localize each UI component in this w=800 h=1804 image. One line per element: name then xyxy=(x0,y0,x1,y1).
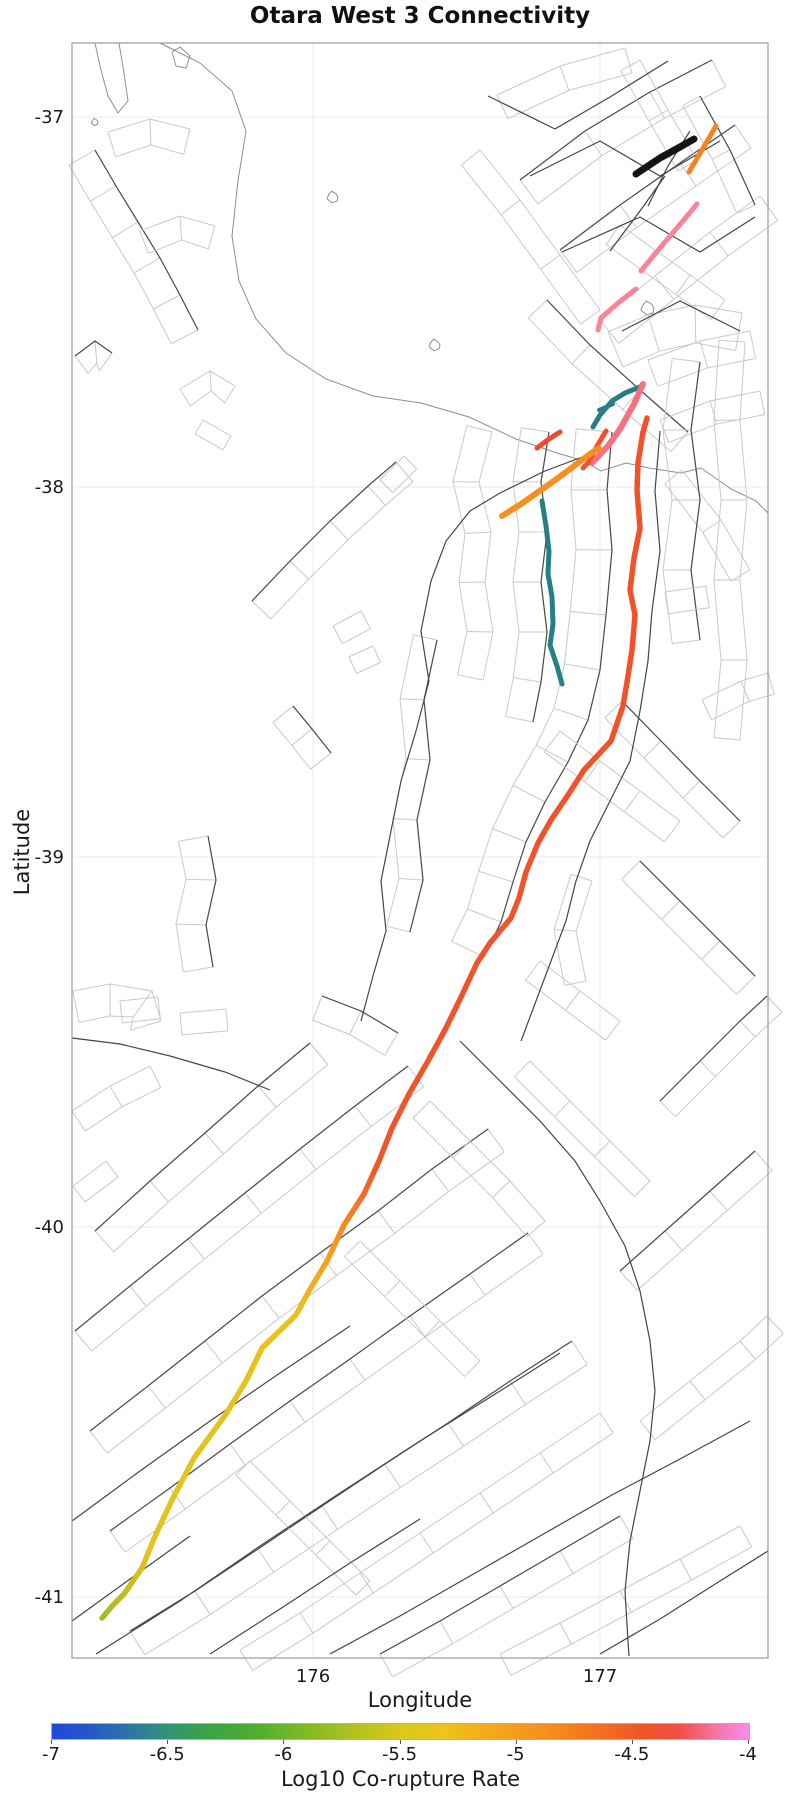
fault-chain-rung xyxy=(440,1621,453,1644)
y-tick-label: -40 xyxy=(35,1217,64,1238)
fault-chain-rung xyxy=(300,1613,313,1633)
fault-chain-offset xyxy=(271,482,413,619)
fault-chain-rung xyxy=(361,611,370,629)
fault-chain xyxy=(648,331,750,360)
fault-chain-rung xyxy=(290,1401,305,1422)
fault-chain-rung xyxy=(73,1186,85,1202)
fault-chain-rung xyxy=(378,1211,395,1233)
fault-trace xyxy=(410,640,437,932)
fault-chain-rung xyxy=(387,926,410,932)
fault-chain-rung xyxy=(655,276,674,299)
fault-chain-offset xyxy=(668,608,709,614)
fault-chain-rung xyxy=(258,1549,274,1572)
fault-chain-rung xyxy=(665,1231,682,1250)
fault-chain-rung xyxy=(108,132,116,157)
fault-chain xyxy=(430,1101,545,1221)
fault-trace xyxy=(361,456,585,1021)
fault-chain-offset xyxy=(622,879,737,994)
fault-chain-rung xyxy=(571,874,592,881)
fault-chain-rung xyxy=(649,110,668,121)
fault-chain xyxy=(640,1316,767,1421)
fault-chain-rung xyxy=(316,1541,330,1555)
fault-chain-rung xyxy=(140,231,148,253)
colorbar-tick-label: -6 xyxy=(274,1744,292,1765)
fault-chain-rung xyxy=(493,829,526,842)
fault-chain-rung xyxy=(404,456,417,469)
fault-chain-rung xyxy=(600,1413,613,1433)
fault-chain xyxy=(349,646,373,657)
fault-chain-rung xyxy=(396,462,413,482)
fault-chain-rung xyxy=(710,1191,727,1210)
fault-chain-rung xyxy=(750,331,755,358)
fault-chain-offset xyxy=(145,1365,588,1655)
fault-chain-offset xyxy=(655,1334,783,1440)
fault-chain-rung xyxy=(672,358,700,362)
fault-chain-offset xyxy=(676,1012,782,1116)
fault-chain-offset xyxy=(544,752,664,842)
fault-chain-rung xyxy=(99,353,112,371)
fault-chain-rung xyxy=(740,1021,755,1037)
fault-chain-rung xyxy=(712,60,726,87)
fault-chain-rung xyxy=(130,1631,145,1655)
fault-chain-rung xyxy=(625,48,632,73)
fault-chain-rung xyxy=(406,759,430,760)
fault-chain-offset xyxy=(114,1065,328,1252)
fault-chain-rung xyxy=(90,186,116,201)
fault-chain-rung xyxy=(760,391,765,415)
fault-trace xyxy=(210,1519,420,1654)
y-tick-label: -41 xyxy=(35,1587,64,1608)
fault-trace xyxy=(72,1326,350,1521)
fault-chain-rung xyxy=(719,340,745,342)
fault-chain-rung xyxy=(513,678,541,682)
fault-chain xyxy=(479,432,493,680)
colorbar-tick-label: -4.5 xyxy=(614,1744,649,1765)
fault-chain xyxy=(480,150,600,310)
fault-chain-rung xyxy=(755,1151,772,1170)
fault-chain-rung xyxy=(90,1431,107,1453)
fault-chain-rung xyxy=(112,222,138,238)
fault-chain-rung xyxy=(465,532,491,534)
fault-trace xyxy=(380,1516,620,1654)
fault-chain-rung xyxy=(69,150,95,165)
fault-chain-rung xyxy=(622,861,640,879)
fault-chain xyxy=(90,1129,488,1431)
fault-chain-rung xyxy=(606,1021,620,1040)
fault-trace xyxy=(640,861,755,976)
fault-chain xyxy=(322,996,398,1033)
fault-chain-rung xyxy=(566,991,580,1010)
fault-chain-offset xyxy=(637,1170,772,1290)
x-axis-label: Longitude xyxy=(72,1688,768,1712)
island-outline xyxy=(641,301,654,315)
fault-chain-rung xyxy=(150,1066,161,1087)
fault-chain-rung xyxy=(384,1281,400,1297)
fault-chain-rung xyxy=(526,961,540,980)
fault-chain-offset xyxy=(508,73,632,119)
fault-chain-rung xyxy=(458,675,483,680)
fault-chain-rung xyxy=(195,420,203,434)
fault-chain-rung xyxy=(572,1341,587,1365)
fault-chain-rung xyxy=(73,991,79,1022)
fault-chain xyxy=(250,1461,370,1581)
fault-chain-rung xyxy=(420,1533,433,1553)
fault-chain xyxy=(120,997,158,1001)
fault-chain-rung xyxy=(712,150,730,159)
fault-chain-rung xyxy=(521,428,549,432)
fault-chain xyxy=(702,673,768,700)
fault-chain-rung xyxy=(344,1241,360,1257)
fault-chain xyxy=(410,640,437,932)
fault-chain-rung xyxy=(660,1101,676,1117)
fault-chain xyxy=(500,1526,740,1654)
fault-chain-rung xyxy=(702,941,720,959)
fault-trace xyxy=(488,61,668,129)
fault-chain-rung xyxy=(480,1493,493,1513)
fault-chain-offset xyxy=(122,1019,160,1023)
fault-chain-rung xyxy=(95,341,97,363)
fault-chain xyxy=(240,1413,600,1650)
colorbar-gradient xyxy=(51,1723,750,1740)
colorbar-tick-label: -6.5 xyxy=(150,1744,185,1765)
island-outline xyxy=(327,191,338,203)
fault-chain-offset xyxy=(236,1475,356,1595)
fault-chain-rung xyxy=(276,1501,290,1515)
fault-chain-offset xyxy=(313,1020,385,1055)
y-tick-label: -38 xyxy=(35,477,64,498)
fault-chain-rung xyxy=(95,1231,114,1252)
fault-trace xyxy=(322,996,398,1033)
fault-chain-rung xyxy=(148,1386,165,1408)
fault-chain-offset xyxy=(356,662,380,673)
fault-chain-rung xyxy=(467,909,501,922)
fault-chain xyxy=(108,119,190,132)
fault-trace xyxy=(90,1129,488,1431)
fault-chain xyxy=(530,1061,650,1181)
fault-chain-rung xyxy=(527,1221,545,1237)
fault-chain-rung xyxy=(501,200,520,215)
fault-chain-rung xyxy=(400,699,424,700)
fault-chain-rung xyxy=(106,1161,118,1177)
fault-chain-rung xyxy=(171,330,198,344)
fault-chain-rung xyxy=(448,1423,463,1446)
fault-chain-rung xyxy=(560,250,577,272)
fault-chain-rung xyxy=(399,879,423,880)
fault-chain-rung xyxy=(650,92,665,118)
fault-chain-offset xyxy=(344,1257,464,1377)
rupture-path-teal-long xyxy=(542,501,562,684)
fault-chain-rung xyxy=(672,640,700,644)
fault-chain-rung xyxy=(735,125,751,148)
fault-chain-rung xyxy=(581,310,600,324)
fault-chain-rung xyxy=(671,432,688,452)
fault-chain-offset xyxy=(195,434,223,450)
fault-chain-rung xyxy=(183,967,213,972)
fault-chain-rung xyxy=(153,295,180,309)
fault-chain-rung xyxy=(695,305,696,343)
fault-chain-offset xyxy=(683,106,737,214)
fault-chain-rung xyxy=(385,1033,398,1055)
fault-chain-rung xyxy=(210,371,211,391)
colorbar-tick-label: -5 xyxy=(507,1744,525,1765)
fault-chain-rung xyxy=(188,1239,204,1259)
fault-chain-rung xyxy=(700,1061,716,1077)
fault-chain-rung xyxy=(740,1341,755,1359)
fault-chain-rung xyxy=(176,924,206,925)
fault-chain-rung xyxy=(373,646,380,662)
fault-chain-rung xyxy=(714,738,740,740)
fault-chain-rung xyxy=(479,871,513,882)
fault-chain-rung xyxy=(513,481,541,482)
fault-chain-rung xyxy=(195,1591,210,1615)
fault-chain-offset xyxy=(190,391,224,406)
fault-chain-rung xyxy=(464,1361,480,1377)
fault-chain-rung xyxy=(368,486,385,505)
fault-chain-offset xyxy=(387,635,414,926)
fault-chain-offset xyxy=(85,1087,161,1131)
fault-chain-rung xyxy=(541,255,560,269)
rupture-path-orange-northeast xyxy=(689,126,716,172)
fault-chain-rung xyxy=(311,753,331,769)
fault-chain-rung xyxy=(110,1086,122,1107)
fault-chain xyxy=(95,1043,310,1231)
fault-chain-rung xyxy=(680,1559,691,1580)
fault-chain-rung xyxy=(413,1101,430,1118)
island-outline xyxy=(91,118,98,125)
fault-chain-offset xyxy=(663,358,672,643)
fault-chain-offset xyxy=(91,1087,423,1351)
fault-chain-rung xyxy=(461,150,480,165)
fault-chain-rung xyxy=(690,1381,705,1400)
fault-chain-rung xyxy=(640,1421,655,1440)
fault-chain-rung xyxy=(178,836,208,841)
fault-chain-rung xyxy=(273,706,293,723)
fault-chain-rung xyxy=(500,1654,511,1675)
fault-chain-offset xyxy=(619,220,778,343)
fault-chain-rung xyxy=(608,332,623,367)
fault-chain-rung xyxy=(624,791,640,812)
fault-chain xyxy=(73,984,161,1021)
fault-chain-rung xyxy=(262,1296,279,1318)
fault-chain-rung xyxy=(150,119,151,145)
fault-chain-rung xyxy=(385,1464,400,1487)
fault-trace xyxy=(620,1151,755,1271)
fault-chain-offset xyxy=(88,363,99,374)
fault-trace xyxy=(95,1043,310,1231)
fault-chain-rung xyxy=(740,1526,752,1547)
fault-chain-rung xyxy=(333,626,342,644)
fault-chain-rung xyxy=(300,1149,316,1169)
x-tick-label: 176 xyxy=(296,1666,330,1687)
colorbar-tick-label: -7 xyxy=(42,1744,60,1765)
fault-chain-rung xyxy=(767,1316,783,1334)
fault-trace xyxy=(252,462,396,601)
fault-chain-rung xyxy=(208,226,215,249)
fault-chain-rung xyxy=(540,1453,553,1473)
x-tick-label: 177 xyxy=(583,1666,617,1687)
fault-chain-offset xyxy=(577,148,751,272)
fault-chain-rung xyxy=(514,1061,530,1077)
fault-chain-rung xyxy=(292,729,312,745)
fault-chain-offset xyxy=(85,1177,118,1202)
fault-chain-rung xyxy=(184,129,190,154)
rupture-path-main-corupture-trace xyxy=(102,418,647,1618)
fault-chain-rung xyxy=(664,821,680,842)
fault-chain-rung xyxy=(760,196,778,220)
fault-chain-rung xyxy=(528,1233,543,1254)
fault-trace xyxy=(547,300,688,432)
fault-chain-rung xyxy=(554,708,588,720)
fault-trace xyxy=(460,1041,655,1656)
fault-chain xyxy=(360,1241,480,1361)
coastline-peninsula xyxy=(172,47,190,68)
fault-chain-rung xyxy=(737,976,755,994)
fault-chain-rung xyxy=(290,561,309,579)
colorbar-tick-label: -5.5 xyxy=(382,1744,417,1765)
colorbar-tick-label: -4 xyxy=(739,1744,757,1765)
fault-chain xyxy=(665,586,706,592)
fault-trace xyxy=(484,432,612,957)
fault-chain xyxy=(576,881,592,981)
fault-chain-offset xyxy=(461,165,580,324)
fault-chain xyxy=(691,362,700,640)
fault-trace xyxy=(560,125,735,250)
fault-chain-rung xyxy=(150,1181,169,1202)
fault-chain-rung xyxy=(585,131,602,156)
coastline xyxy=(160,43,768,513)
fault-chain-rung xyxy=(470,1274,485,1295)
fault-chain-rung xyxy=(330,521,348,540)
fault-chain xyxy=(497,48,625,95)
fault-chain-rung xyxy=(223,436,231,450)
rupture-path-pink-upper xyxy=(641,204,697,271)
y-tick-label: -37 xyxy=(35,107,64,128)
fault-chain-rung xyxy=(453,1141,470,1158)
fault-chain-rung xyxy=(180,1013,182,1035)
fault-chain xyxy=(140,216,215,231)
fault-chain-rung xyxy=(570,611,606,615)
fault-chain-rung xyxy=(702,700,712,720)
fault-chain-rung xyxy=(560,66,569,90)
fault-trace xyxy=(330,1421,750,1654)
fault-chain-offset xyxy=(273,723,311,770)
fault-chain-rung xyxy=(240,1650,253,1670)
fault-chain-rung xyxy=(459,582,485,583)
fault-chain-offset xyxy=(506,428,522,717)
fault-chain-rung xyxy=(252,601,271,619)
figure-canvas: Otara West 3 Connectivity 176177-37-38-3… xyxy=(0,0,800,1804)
fault-chain xyxy=(180,1009,226,1013)
fault-chain xyxy=(180,371,235,389)
rupture-path-subject-fault-otara-west-3 xyxy=(636,139,694,174)
fault-chain-rung xyxy=(648,360,658,386)
fault-chain-rung xyxy=(492,1181,510,1197)
fault-trace xyxy=(622,701,740,821)
fault-chain-offset xyxy=(342,629,370,644)
fault-chain xyxy=(660,391,760,420)
fault-chain-rung xyxy=(565,664,600,670)
fault-chain-offset xyxy=(514,1077,634,1197)
fault-chain-rung xyxy=(350,1011,361,1034)
map-plot: 176177-37-38-39-40-41 xyxy=(0,0,800,1804)
fault-trace xyxy=(206,836,216,967)
fault-chain-rung xyxy=(130,1021,161,1030)
fault-chain xyxy=(203,420,231,436)
fault-trace xyxy=(72,1536,190,1621)
fault-chain-rung xyxy=(723,821,740,838)
coastline-peninsula xyxy=(95,43,128,113)
fault-chain-rung xyxy=(75,356,88,374)
fault-chain-rung xyxy=(488,1129,504,1152)
fault-chain-rung xyxy=(497,95,508,119)
fault-chain-offset xyxy=(148,240,208,254)
fault-chain-rung xyxy=(186,879,216,880)
rupture-path-teal-dash xyxy=(599,404,613,410)
fault-chain-rung xyxy=(432,1169,449,1191)
fault-chain-offset xyxy=(116,145,184,157)
y-tick-label: -39 xyxy=(35,847,64,868)
fault-chain-rung xyxy=(648,315,659,351)
fault-chain-rung xyxy=(414,635,437,640)
fault-chain-rung xyxy=(554,1101,570,1117)
fault-chain-rung xyxy=(230,1444,245,1465)
fault-chain-rung xyxy=(736,313,742,350)
fault-chain-rung xyxy=(506,717,533,722)
fault-chain-offset xyxy=(176,841,186,972)
fault-chain-rung xyxy=(544,731,560,752)
fault-chain-rung xyxy=(536,745,568,762)
fault-chain-rung xyxy=(644,741,661,758)
fault-chain-rung xyxy=(349,657,356,673)
fault-chain-rung xyxy=(594,1141,610,1157)
fault-chain-rung xyxy=(356,1581,370,1595)
colorbar-label: Log10 Co-rupture Rate xyxy=(51,1767,750,1791)
fault-chain-rung xyxy=(120,1001,122,1023)
fault-chain-rung xyxy=(72,1111,85,1131)
fault-chain-rung xyxy=(634,1181,650,1197)
fault-chain-rung xyxy=(560,1623,571,1644)
fault-chain xyxy=(252,462,396,601)
fault-chain-rung xyxy=(245,1193,261,1213)
fault-chain-rung xyxy=(768,673,774,694)
fault-chain-rung xyxy=(380,480,393,493)
fault-chain-rung xyxy=(452,941,484,957)
fault-chain-rung xyxy=(572,345,590,364)
fault-chain-rung xyxy=(355,1106,371,1127)
fault-chain-rung xyxy=(110,1531,125,1552)
fault-trace xyxy=(293,706,331,753)
fault-chain-rung xyxy=(322,1506,338,1529)
fault-chain-offset xyxy=(413,1118,527,1237)
fault-chain-offset xyxy=(79,1016,133,1030)
fault-trace xyxy=(691,362,700,640)
fault-chain-rung xyxy=(225,386,235,403)
fault-chain-offset xyxy=(182,1031,228,1035)
fault-chain-rung xyxy=(134,258,160,273)
fault-chain xyxy=(547,300,688,432)
fault-chain-rung xyxy=(180,216,182,240)
fault-chain-rung xyxy=(767,996,782,1012)
fault-chain-rung xyxy=(75,1331,91,1351)
fault-chain-offset xyxy=(453,425,467,674)
fault-trace xyxy=(660,996,767,1101)
island-outline xyxy=(429,339,440,351)
fault-chain-rung xyxy=(467,631,493,632)
fault-chain-rung xyxy=(528,300,547,318)
fault-chain-rung xyxy=(683,781,700,798)
fault-chain-rung xyxy=(313,996,322,1020)
fault-chain-rung xyxy=(360,1573,373,1593)
